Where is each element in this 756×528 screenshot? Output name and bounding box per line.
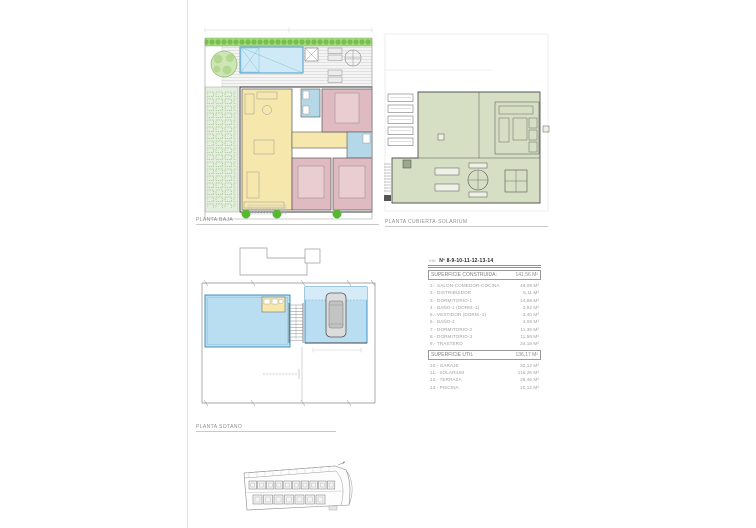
- area-row: 3.- DORMITORIO-114,68 M²: [428, 297, 541, 304]
- site-plan: [237, 459, 357, 517]
- label-planta-baja: PLANTA BAJA: [196, 217, 379, 225]
- header-rule: [428, 265, 541, 268]
- superficie-construida-row: SUPERFICIE CONSTRUIDA: 141,56 M²: [428, 270, 541, 280]
- areas-table-header: VIV. Nº 8-9-10-11-12-13-14: [428, 258, 541, 265]
- area-row: 12.- TERRAZA28,46 M²: [428, 376, 541, 383]
- floor-plan-cubierta-solarium: [383, 30, 553, 215]
- area-row: 13.- PISCINA10,12 M²: [428, 384, 541, 391]
- area-row: 9.- TRASTERO34,18 M²: [428, 340, 541, 347]
- viv-prefix: VIV.: [429, 258, 436, 263]
- label-planta-cubierta: PLANTA CUBIERTA-SOLARIUM: [385, 219, 548, 227]
- area-row: 11.- SOLARIUM116,26 M²: [428, 369, 541, 376]
- area-row: 8.- DORMITORIO-311,56 M²: [428, 333, 541, 340]
- floor-plan-planta-baja: [197, 14, 379, 226]
- drawing-sheet: PLANTA BAJA: [0, 0, 756, 528]
- area-row: 7.- DORMITORIO-211,36 M²: [428, 326, 541, 333]
- area-row: 2.- DISTRIBUIDOR5,11 M²: [428, 289, 541, 296]
- area-row: 5.- VESTIDOR (DORM.-1)3,40 M²: [428, 311, 541, 318]
- areas-table: VIV. Nº 8-9-10-11-12-13-14 SUPERFICIE CO…: [428, 258, 541, 391]
- label-planta-sotano: PLANTA SOTANO: [196, 424, 336, 432]
- superficie-util-row: SUPERFICIE UTIL 136,17 M²: [428, 350, 541, 360]
- area-row: 10.- GARAJE32,12 M²: [428, 362, 541, 369]
- area-row: 4.- BAÑO-1 (DORM.-1)3,92 M²: [428, 304, 541, 311]
- area-row: 6.- BAÑO-24,09 M²: [428, 318, 541, 325]
- sheet-edge-line: [187, 0, 188, 528]
- floor-plan-sotano: [193, 243, 383, 428]
- dwelling-numbers: Nº 8-9-10-11-12-13-14: [439, 258, 493, 264]
- area-row: 1.- SALON-COMEDOR-COCINA48,08 M²: [428, 282, 541, 289]
